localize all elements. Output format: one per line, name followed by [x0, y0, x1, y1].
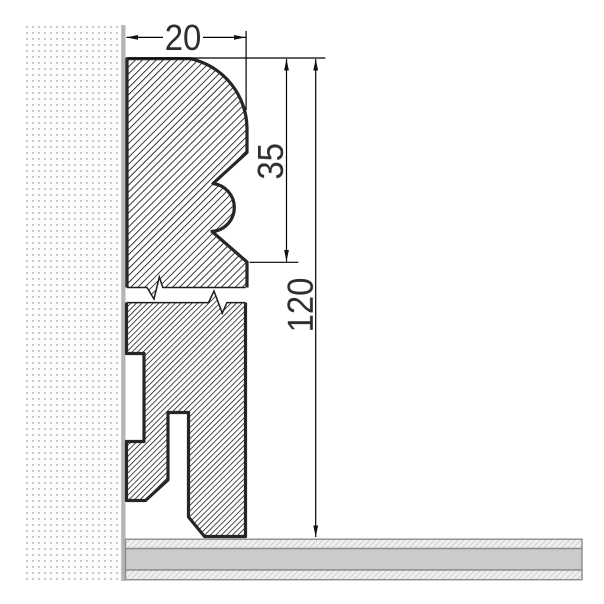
svg-text:20: 20	[165, 18, 202, 58]
svg-text:120: 120	[281, 278, 321, 333]
svg-text:35: 35	[251, 143, 291, 180]
